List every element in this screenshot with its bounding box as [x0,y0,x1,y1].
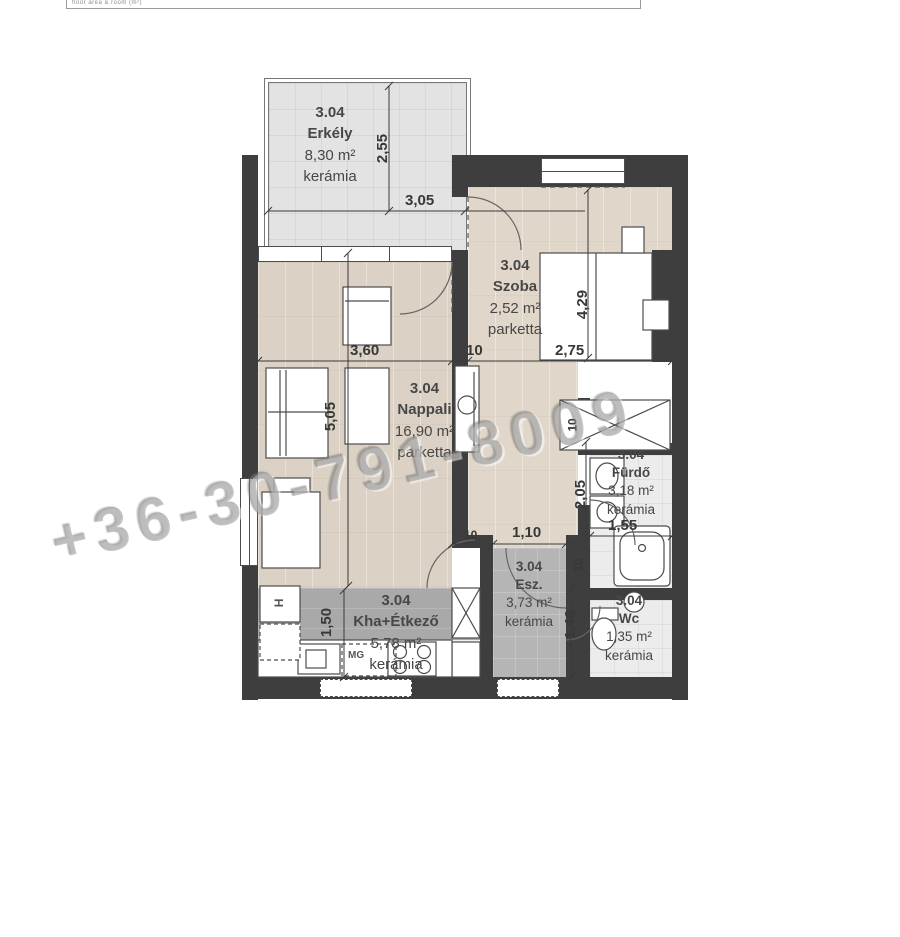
room-floor: parketta [466,319,564,340]
nightstand [622,227,644,253]
dim-nappali-height: 5,05 [322,402,339,431]
room-name: Nappali [362,399,487,420]
dim-furdo-width: 1,55 [608,517,637,534]
room-name: Kha+Étkező [322,611,470,632]
dishwasher-tag: MG [348,650,364,661]
room-area: 8,30 m² [270,145,390,166]
bathtub [614,526,670,586]
room-area: 16,90 m² [362,421,487,442]
room-name: Erkély [270,123,390,144]
room-id: 3.04 [322,590,470,611]
fridge-tag: H [271,599,285,608]
door-arc-kitchen [427,540,475,588]
room-floor: kerámia [590,647,668,665]
dim-wall-c: 10 [572,558,586,571]
label-esz: 3.04 Esz. 3,73 m² kerámia [490,558,568,631]
plan-linework [0,0,900,937]
label-szoba: 3.04 Szoba 2,52 m² parketta [466,255,564,340]
door-arc-szoba [468,197,521,250]
cabinet-dashed [260,624,300,660]
label-erkely: 3.04 Erkély 8,30 m² kerámia [270,102,390,187]
armchair [343,287,391,345]
dim-kitchen-height: 1,50 [318,608,335,637]
room-area: 5,78 m² [322,633,470,654]
dim-nappali-width: 3,60 [350,342,379,359]
label-nappali: 3.04 Nappali 16,90 m² parketta [362,378,487,463]
dim-balcony-height: 2,55 [374,134,391,163]
dim-wall-a: 10 [466,342,483,359]
room-area: 1,35 m² [590,628,668,646]
room-id: 3.04 [590,592,668,610]
dim-wall-d: 10 [566,418,580,431]
room-floor: parketta [362,442,487,463]
room-id: 3.04 [270,102,390,123]
door-arc-balcony [400,262,452,314]
sofa [266,368,328,458]
dining-table [262,492,320,568]
label-wc: 3.04 Wc 1,35 m² kerámia [590,592,668,665]
room-floor: kerámia [322,654,470,675]
label-kha: 3.04 Kha+Étkező 5,78 m² kerámia [322,590,470,675]
dim-esz-door: 1,10 [512,524,541,541]
nightstand [643,300,669,330]
floor-plan: floor area & room (m²) [0,0,900,937]
room-area: 2,52 m² [466,298,564,319]
room-id: 3.04 [490,558,568,576]
room-floor: kerámia [490,613,568,631]
dim-wc-height: 1,46 [562,610,579,639]
room-id: 3.04 [362,378,487,399]
dim-szoba-width: 2,75 [555,342,584,359]
room-floor: kerámia [270,166,390,187]
room-name: Wc [590,610,668,628]
room-id: 3.04 [590,446,672,464]
room-area: 3,18 m² [590,482,672,500]
room-area: 3,73 m² [490,594,568,612]
dim-szoba-height: 4,29 [574,290,591,319]
label-furdo: 3.04 Fürdő 3,18 m² kerámia [590,446,672,519]
room-name: Szoba [466,276,564,297]
dim-wall-b: 10 [464,528,477,542]
room-name: Fürdő [590,464,672,482]
room-name: Esz. [490,576,568,594]
dim-balcony-width: 3,05 [405,192,434,209]
dim-furdo-height: 2,05 [572,480,589,509]
room-id: 3.04 [466,255,564,276]
